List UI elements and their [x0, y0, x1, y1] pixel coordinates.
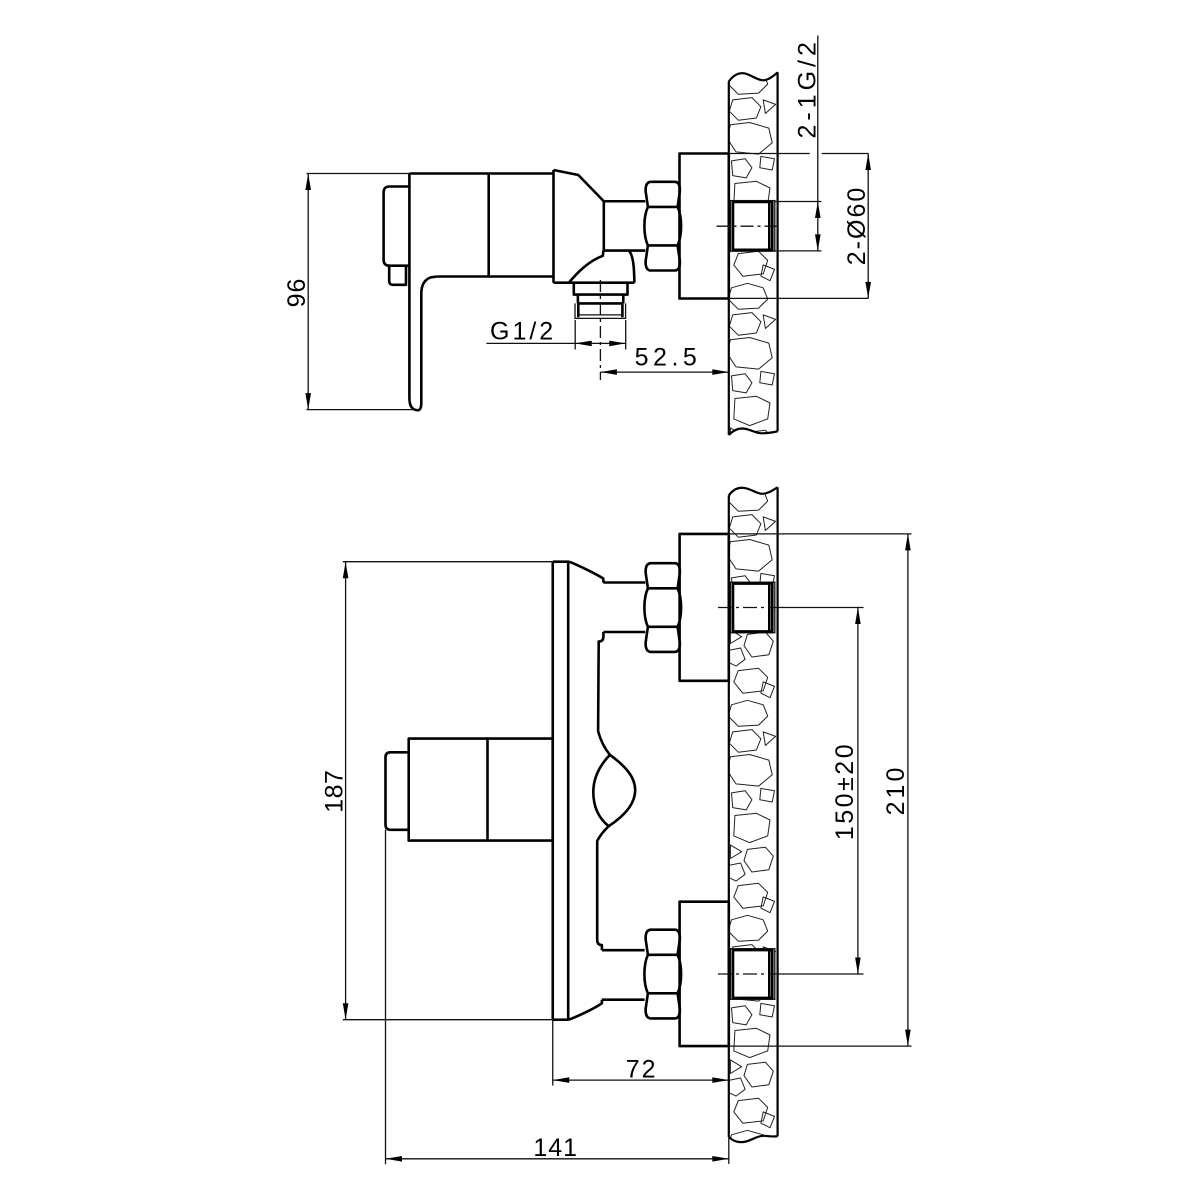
svg-text:96: 96 [283, 278, 311, 308]
svg-text:150±20: 150±20 [831, 742, 859, 840]
svg-text:52.5: 52.5 [635, 344, 702, 372]
svg-text:G1/2: G1/2 [490, 317, 556, 345]
svg-text:187: 187 [320, 770, 348, 813]
svg-text:72: 72 [626, 1056, 658, 1084]
svg-text:210: 210 [882, 765, 910, 816]
svg-text:2-Ø60: 2-Ø60 [843, 186, 871, 265]
svg-text:2-1G/2: 2-1G/2 [794, 38, 822, 138]
svg-text:141: 141 [533, 1134, 578, 1162]
